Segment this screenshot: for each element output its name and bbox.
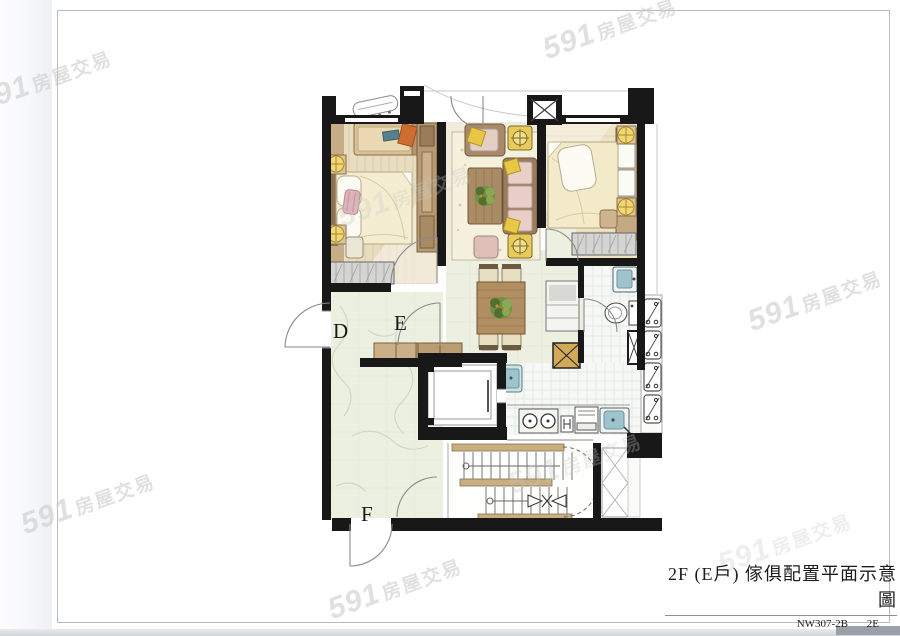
page-left-margin (0, 0, 52, 636)
unit-code: 2E (867, 618, 879, 630)
title-block: 2F (E戶) 傢俱配置平面示意圖 NW307-2B 2E (665, 560, 897, 630)
screenshot-root: D E F 591房屋交易 591房屋交易 591房屋交易 591房屋交易 59… (0, 0, 900, 636)
drawing-sheet (57, 10, 890, 623)
drawing-number: NW307-2B (797, 618, 848, 630)
plan-title: 2F (E戶) 傢俱配置平面示意圖 (665, 560, 897, 616)
plan-subtitle: NW307-2B 2E (665, 616, 897, 630)
page-bottom-edge (0, 629, 900, 636)
